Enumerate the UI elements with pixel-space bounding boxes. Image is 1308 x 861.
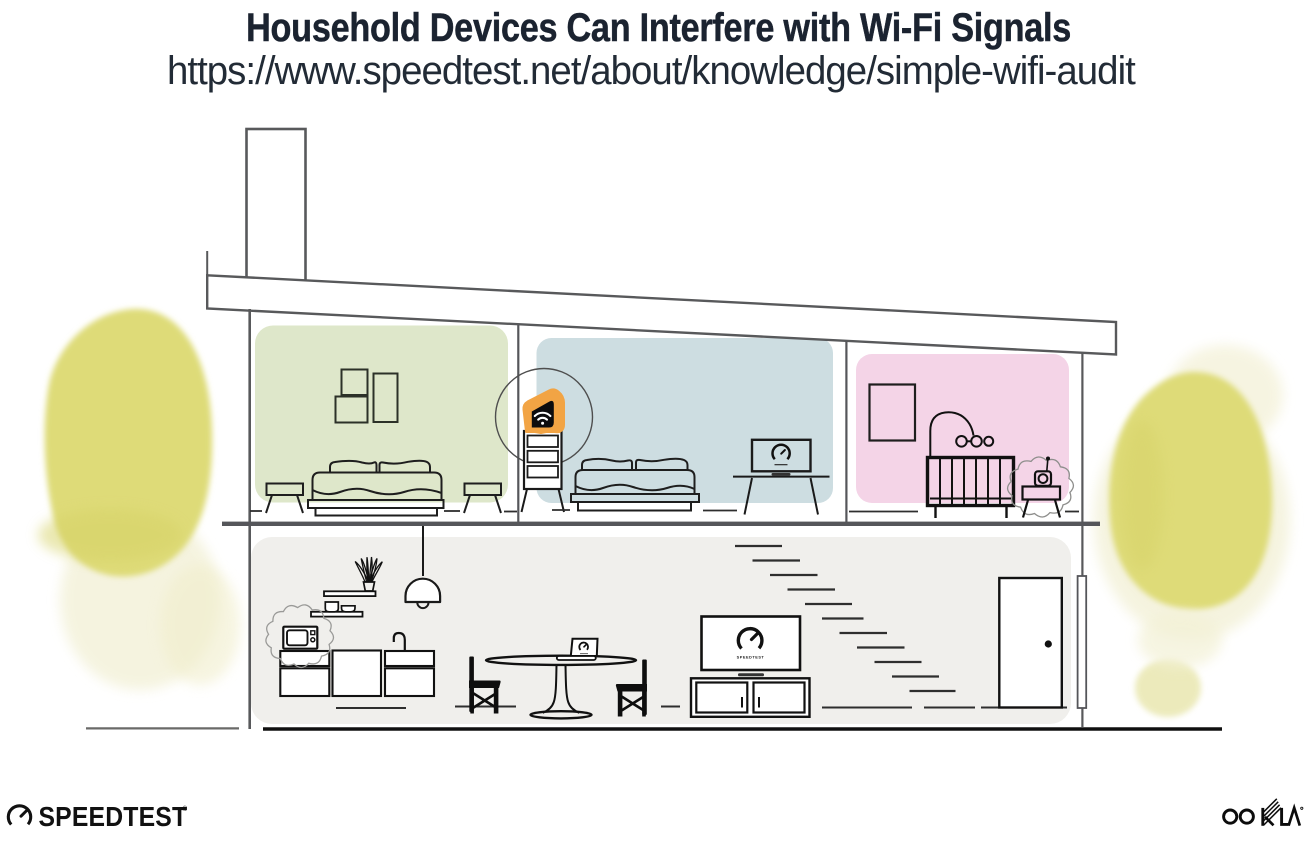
svg-text:®: ® xyxy=(183,805,188,813)
svg-text:SPEEDTEST: SPEEDTEST xyxy=(737,655,765,660)
svg-text:SPEEDTEST: SPEEDTEST xyxy=(39,801,188,833)
